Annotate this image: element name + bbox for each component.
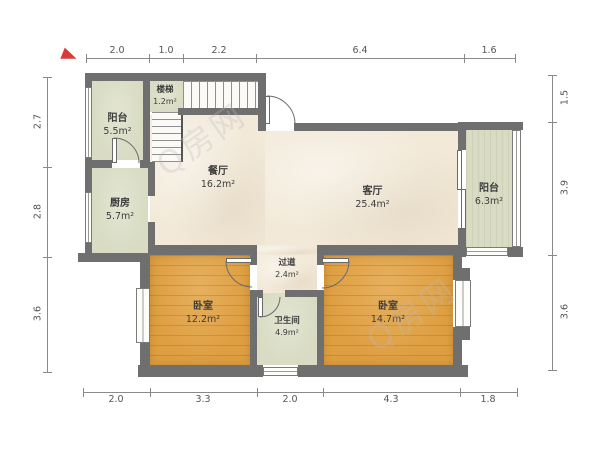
wall-bedroom-left-stub-bottom [140,343,150,367]
hall-opening-floor [252,245,317,255]
dim-tick [43,372,52,373]
dim-tick [548,370,557,371]
door-bathroom [258,297,263,317]
dim-line-bottom [83,392,517,393]
door-entry [265,96,270,124]
wall-under-stairs [178,108,266,115]
dim-tick [548,122,557,123]
dim-line-top [86,58,515,59]
wall-bottom-a [138,365,263,377]
wall-kitchen-right-top [148,162,155,196]
dim-label-top-4: 1.6 [469,45,509,56]
wall-bedroom-right-jut-top [461,268,470,280]
dim-tick [460,388,461,397]
window-bedroom-right [455,280,471,327]
dim-label-bottom-3: 4.3 [371,394,411,405]
door-bedroom-right [322,258,349,263]
wall-balcony-divider-top [458,130,466,150]
dim-label-left-1: 2.8 [33,197,44,227]
dim-tick [548,75,557,76]
wall-balcony-kitchen-a [92,160,112,168]
dim-label-top-0: 2.0 [97,45,137,56]
wall-balcony-stairs [143,81,150,163]
dim-label-top-2: 2.2 [199,45,239,56]
dim-tick [256,54,257,63]
dim-label-top-1: 1.0 [146,45,186,56]
dim-tick [86,54,87,63]
room-kitchen-floor [92,168,148,253]
room-bedroom-right-floor [324,255,453,365]
window-balcony-right-rail [466,247,508,256]
room-hallway-floor [257,255,317,293]
wall-bath-left [250,290,257,367]
dim-label-top-3: 6.4 [340,45,380,56]
wall-living-top [294,123,462,131]
dim-label-right-2: 3.6 [560,297,571,327]
stair-flight-upper [183,81,266,109]
door-bedroom-left [226,258,252,263]
room-balcony-left-floor [92,81,143,160]
dim-label-left-2: 3.6 [33,299,44,329]
window-kitchen [85,192,92,243]
wall-left-stub-top [85,73,92,87]
dim-tick [515,54,516,63]
door-balcony-left [112,138,117,163]
dim-line-right [552,75,553,370]
floor-plan: 楼梯 1.2m² 阳台 5.5m² 厨房 5.7m² 餐厅 16.2m² 客厅 … [0,0,600,450]
dim-label-right-1: 3.9 [560,173,571,203]
dim-label-right-0: 1.5 [560,83,571,113]
room-bathroom-floor [257,293,317,365]
wall-bottom-b [298,365,468,377]
wall-bedroom-right-jut-bottom [461,327,470,340]
room-living-floor [265,131,458,245]
dim-label-left-0: 2.7 [33,107,44,137]
room-bedroom-left-floor [150,255,250,365]
stair-stringer [181,112,183,162]
wall-bath-right [317,290,324,367]
wall-left-mid [85,158,92,192]
dim-label-bottom-2: 2.0 [270,394,310,405]
dim-line-left [47,77,48,372]
window-bedroom-left [136,288,150,343]
wall-balcony-corner [508,247,523,257]
wall-balcony-right-top [458,122,523,130]
stair-flight-lower [152,112,182,162]
dim-tick [257,388,258,397]
dim-tick [43,257,52,258]
dim-tick [548,255,557,256]
wall-top [85,73,266,81]
door-sliding-panel-2 [461,189,466,229]
window-balcony-left [85,87,92,158]
wall-kitchen-bottom [78,253,148,262]
dim-tick [517,388,518,397]
north-arrow-icon [60,48,78,65]
wall-bath-top-b [285,290,324,297]
wall-living-bottom-right [317,245,458,255]
room-balcony-right-floor [466,130,512,247]
dim-tick [464,54,465,63]
wall-bath-top-a [250,290,263,297]
dim-tick [323,388,324,397]
dim-label-bottom-0: 2.0 [96,394,136,405]
window-balcony-right [512,130,521,247]
dim-label-bottom-4: 1.8 [468,394,508,405]
wall-balcony-divider-bottom [458,228,466,257]
dim-tick [43,167,52,168]
dim-tick [150,388,151,397]
dim-tick [43,77,52,78]
dim-tick [83,388,84,397]
window-bathroom [263,367,298,376]
door-sliding-panel-1 [457,150,462,190]
wall-living-bottom-left [148,245,252,255]
wall-bedroom-left-stub-top [140,255,150,288]
dim-label-bottom-1: 3.3 [183,394,223,405]
